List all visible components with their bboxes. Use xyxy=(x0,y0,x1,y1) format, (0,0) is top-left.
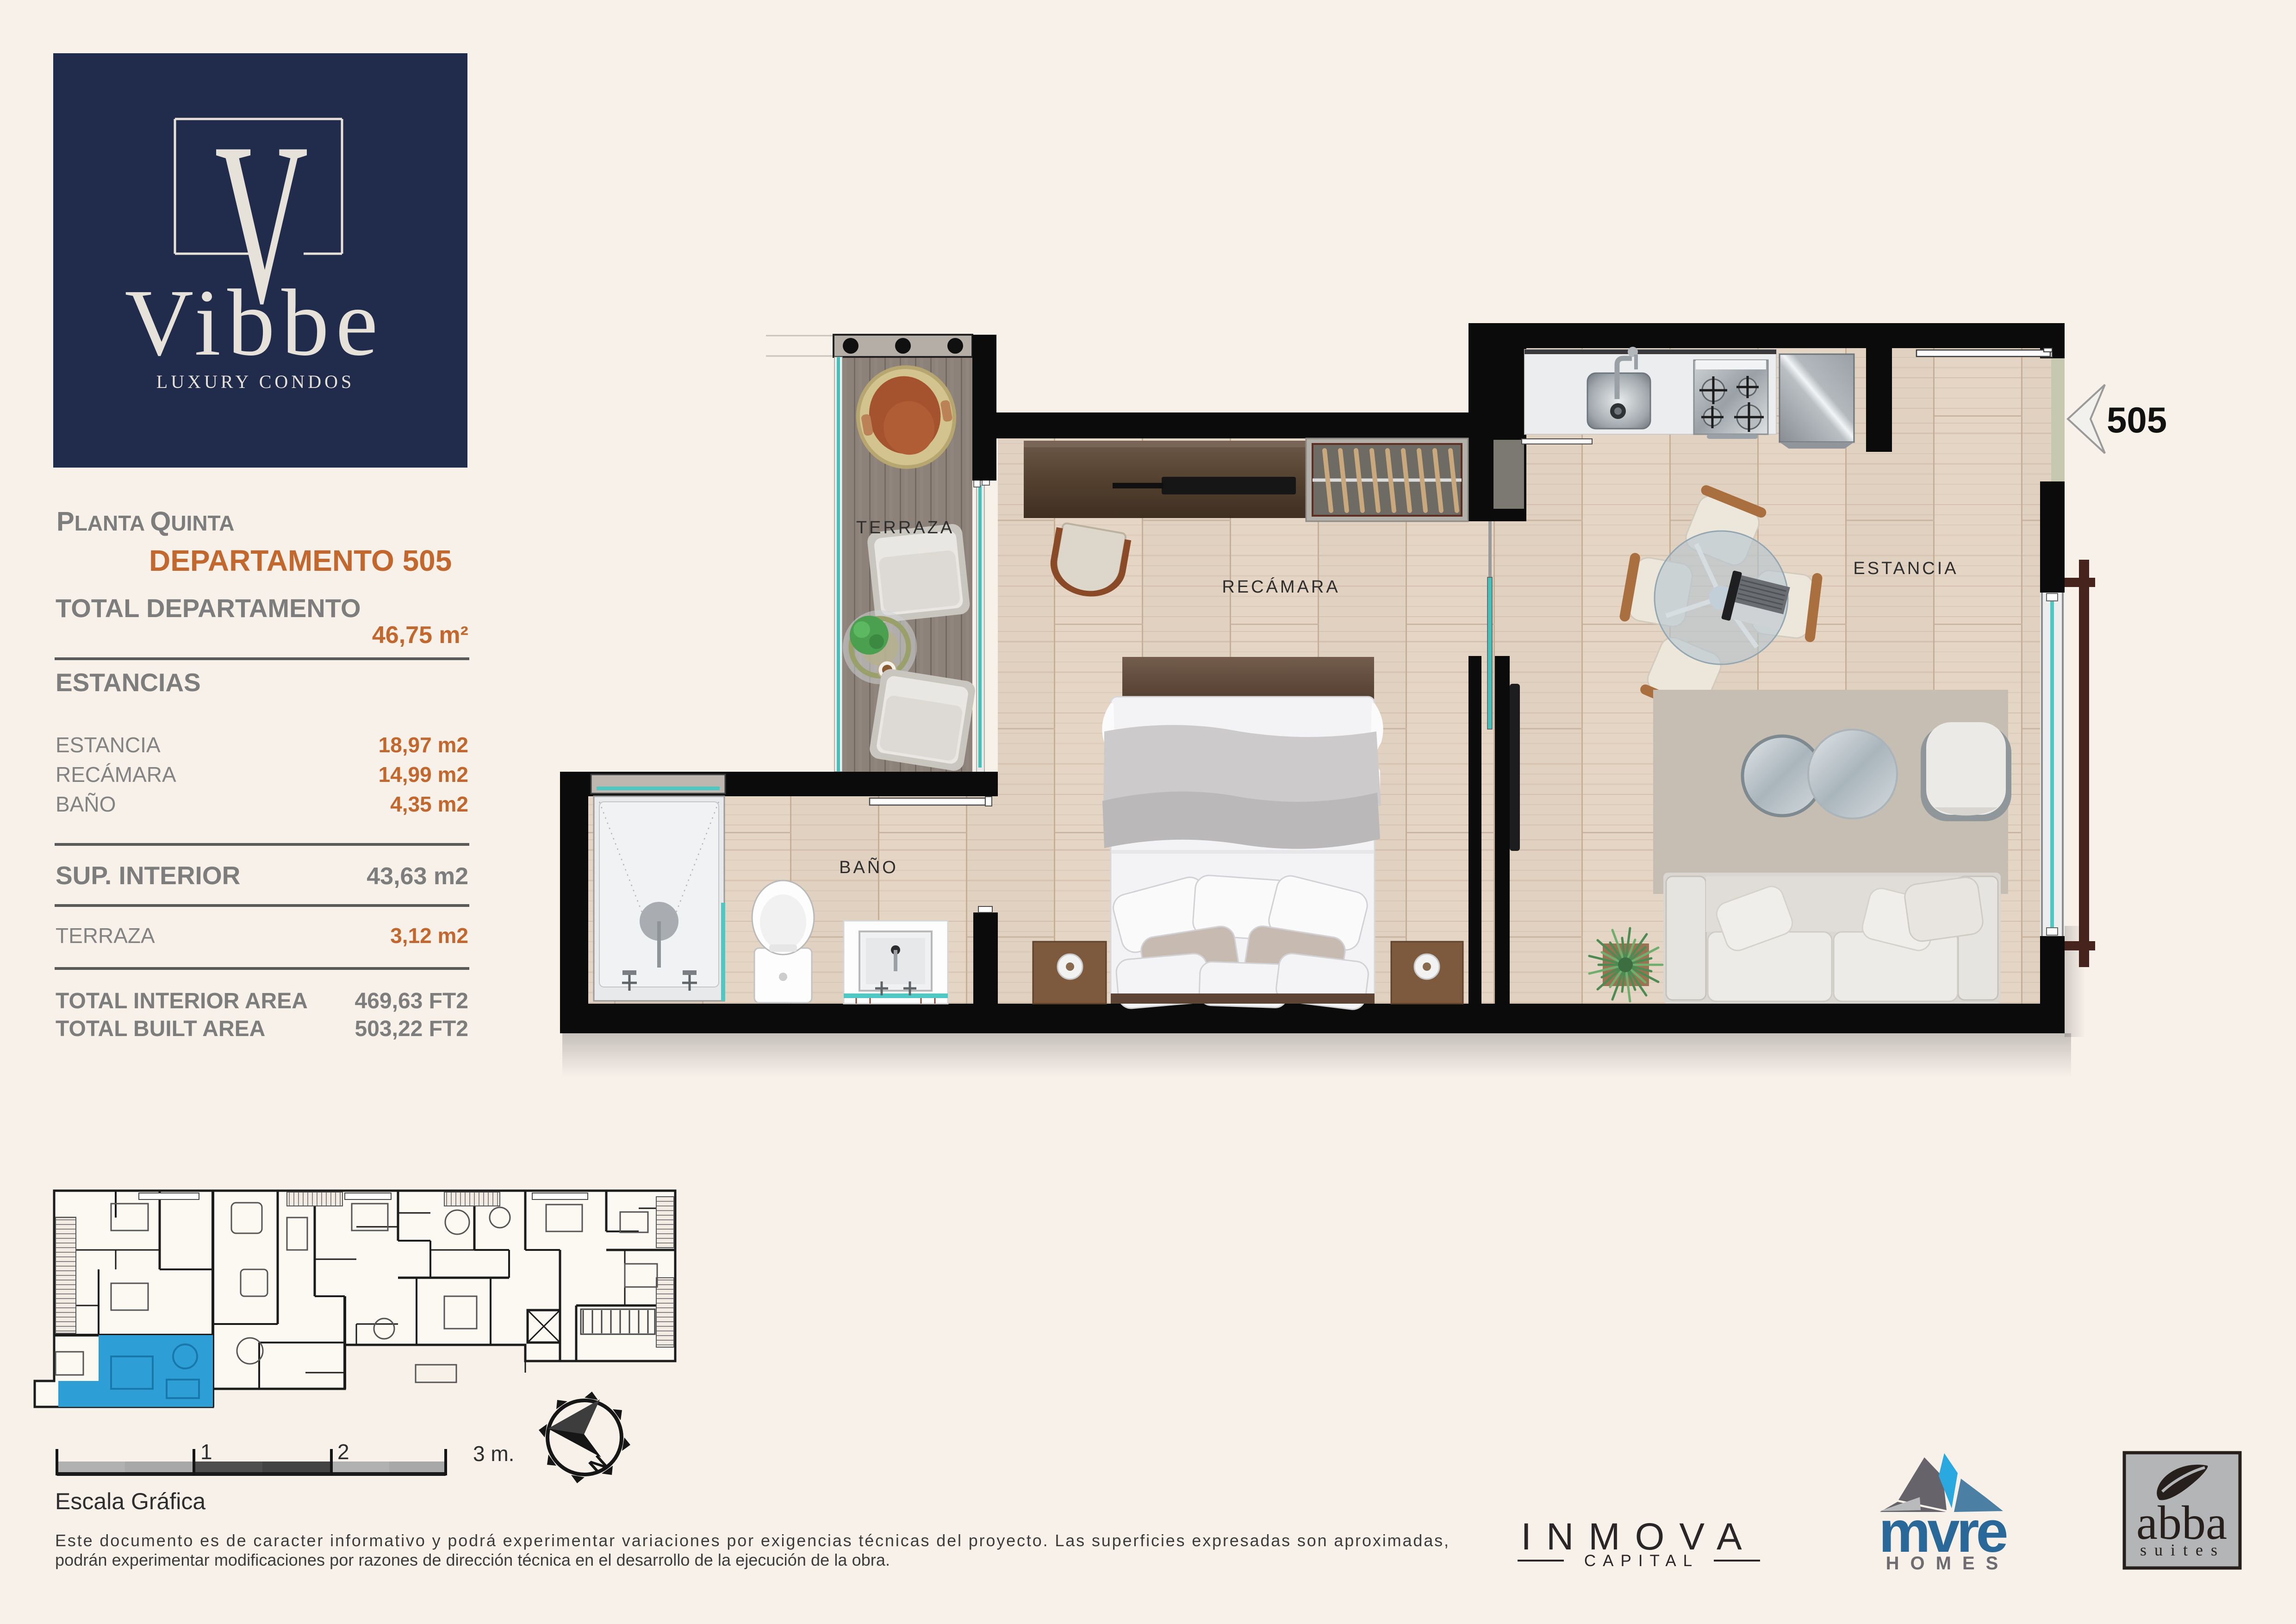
svg-text:DEPARTAMENTO 505: DEPARTAMENTO 505 xyxy=(149,544,452,577)
svg-text:ESTANCIA: ESTANCIA xyxy=(1853,559,1958,578)
svg-text:469,63 FT2: 469,63 FT2 xyxy=(355,989,468,1013)
svg-text:BAÑO: BAÑO xyxy=(839,857,898,877)
svg-text:505: 505 xyxy=(2107,400,2167,440)
svg-text:PLANTA QUINTA: PLANTA QUINTA xyxy=(56,506,234,537)
svg-text:TOTAL DEPARTAMENTO: TOTAL DEPARTAMENTO xyxy=(56,593,361,623)
svg-text:3 m.: 3 m. xyxy=(473,1442,514,1466)
svg-text:46,75 m²: 46,75 m² xyxy=(372,622,468,649)
svg-text:4,35 m2: 4,35 m2 xyxy=(390,792,468,816)
svg-text:18,97 m2: 18,97 m2 xyxy=(379,733,468,757)
svg-text:RECÁMARA: RECÁMARA xyxy=(1222,577,1340,597)
svg-text:podrán experimentar modificaci: podrán experimentar modificaciones por r… xyxy=(55,1550,890,1569)
svg-text:TERRAZA: TERRAZA xyxy=(56,924,155,948)
svg-text:ESTANCIA: ESTANCIA xyxy=(56,733,161,757)
svg-text:RECÁMARA: RECÁMARA xyxy=(56,762,176,787)
svg-text:14,99 m2: 14,99 m2 xyxy=(379,762,468,787)
svg-text:HOMES: HOMES xyxy=(1886,1553,2010,1574)
svg-text:ESTANCIAS: ESTANCIAS xyxy=(56,668,201,697)
svg-text:Este documento es de caracter: Este documento es de caracter informativ… xyxy=(55,1531,1449,1550)
svg-text:TERRAZA: TERRAZA xyxy=(856,518,954,537)
svg-text:1: 1 xyxy=(200,1440,212,1464)
svg-text:CAPITAL: CAPITAL xyxy=(1584,1552,1699,1570)
svg-text:TOTAL BUILT AREA: TOTAL BUILT AREA xyxy=(56,1017,265,1041)
svg-text:503,22 FT2: 503,22 FT2 xyxy=(355,1017,468,1041)
svg-text:2: 2 xyxy=(337,1440,349,1464)
svg-text:3,12 m2: 3,12 m2 xyxy=(390,924,468,948)
svg-text:LUXURY CONDOS: LUXURY CONDOS xyxy=(156,371,355,392)
svg-text:suites: suites xyxy=(2140,1541,2225,1559)
svg-text:SUP. INTERIOR: SUP. INTERIOR xyxy=(56,861,240,890)
svg-text:Escala Gráfica: Escala Gráfica xyxy=(55,1488,205,1514)
svg-text:43,63 m2: 43,63 m2 xyxy=(367,863,468,890)
svg-text:BAÑO: BAÑO xyxy=(56,792,116,816)
svg-text:Vibbe: Vibbe xyxy=(124,269,384,375)
svg-text:TOTAL INTERIOR AREA: TOTAL INTERIOR AREA xyxy=(56,989,308,1013)
